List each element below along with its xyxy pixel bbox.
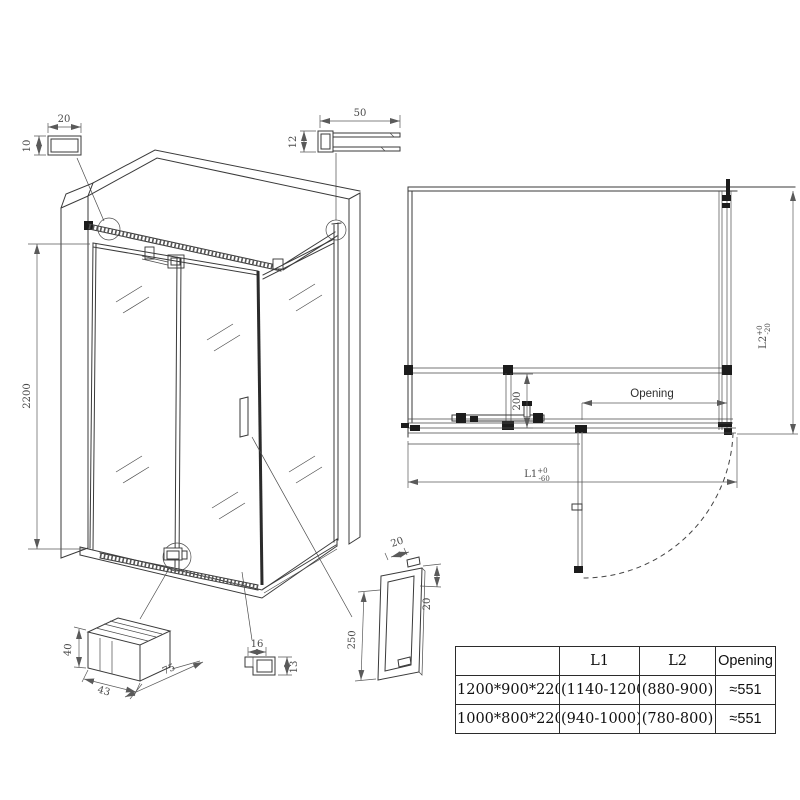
size-table-row-1000: 1000*800*2200 (940-1000) (780-800) ≈551 — [456, 705, 776, 734]
plan-opening-label: Opening — [630, 388, 673, 400]
handle-offset-label: 20 — [422, 598, 433, 611]
iso-height-label: 2200 — [22, 383, 33, 408]
l1-cell: (1140-1200) — [560, 676, 640, 705]
handle-length-label: 250 — [347, 630, 359, 649]
profile-width-label: 16 — [251, 639, 264, 650]
l2-cell: (880-900) — [640, 676, 716, 705]
l2-cell: (780-800) — [640, 705, 716, 734]
technical-drawing-sheet: 20 10 50 12 — [0, 0, 800, 800]
opening-cell: ≈551 — [716, 676, 776, 705]
l1-cell: (940-1000) — [560, 705, 640, 734]
tube-height-label: 10 — [22, 140, 33, 153]
plan-l2-tol-minus: -20 — [764, 323, 772, 334]
size-table-header-l2: L2 — [640, 647, 716, 676]
channel-height-label: 12 — [288, 136, 299, 149]
plan-l1-label: L1 — [524, 469, 537, 480]
plan-l1-tol-minus: -60 — [539, 475, 550, 483]
size-table-header-l1: L1 — [560, 647, 640, 676]
size-table-header-row: L1 L2 Opening — [456, 647, 776, 676]
size-table-header-opening: Opening — [716, 647, 776, 676]
size-cell: 1000*800*2200 — [456, 705, 560, 734]
size-table: L1 L2 Opening 1200*900*2200 (1140-1200) … — [455, 646, 776, 734]
plan-l2-tol-plus: +0 — [756, 325, 764, 335]
size-table-row-1200: 1200*900*2200 (1140-1200) (880-900) ≈551 — [456, 676, 776, 705]
plan-support-offset-label: 200 — [512, 391, 523, 410]
size-cell: 1200*900*2200 — [456, 676, 560, 705]
profile-height-label: 13 — [289, 661, 300, 674]
tube-width-label: 20 — [58, 114, 71, 125]
opening-cell: ≈551 — [716, 705, 776, 734]
plan-l1-tol-plus: +0 — [537, 467, 547, 475]
bracket-height-label: 40 — [63, 643, 75, 656]
channel-width-label: 50 — [354, 108, 367, 119]
plan-l2-label: L2 — [758, 336, 769, 349]
size-table-header-size — [456, 647, 560, 676]
